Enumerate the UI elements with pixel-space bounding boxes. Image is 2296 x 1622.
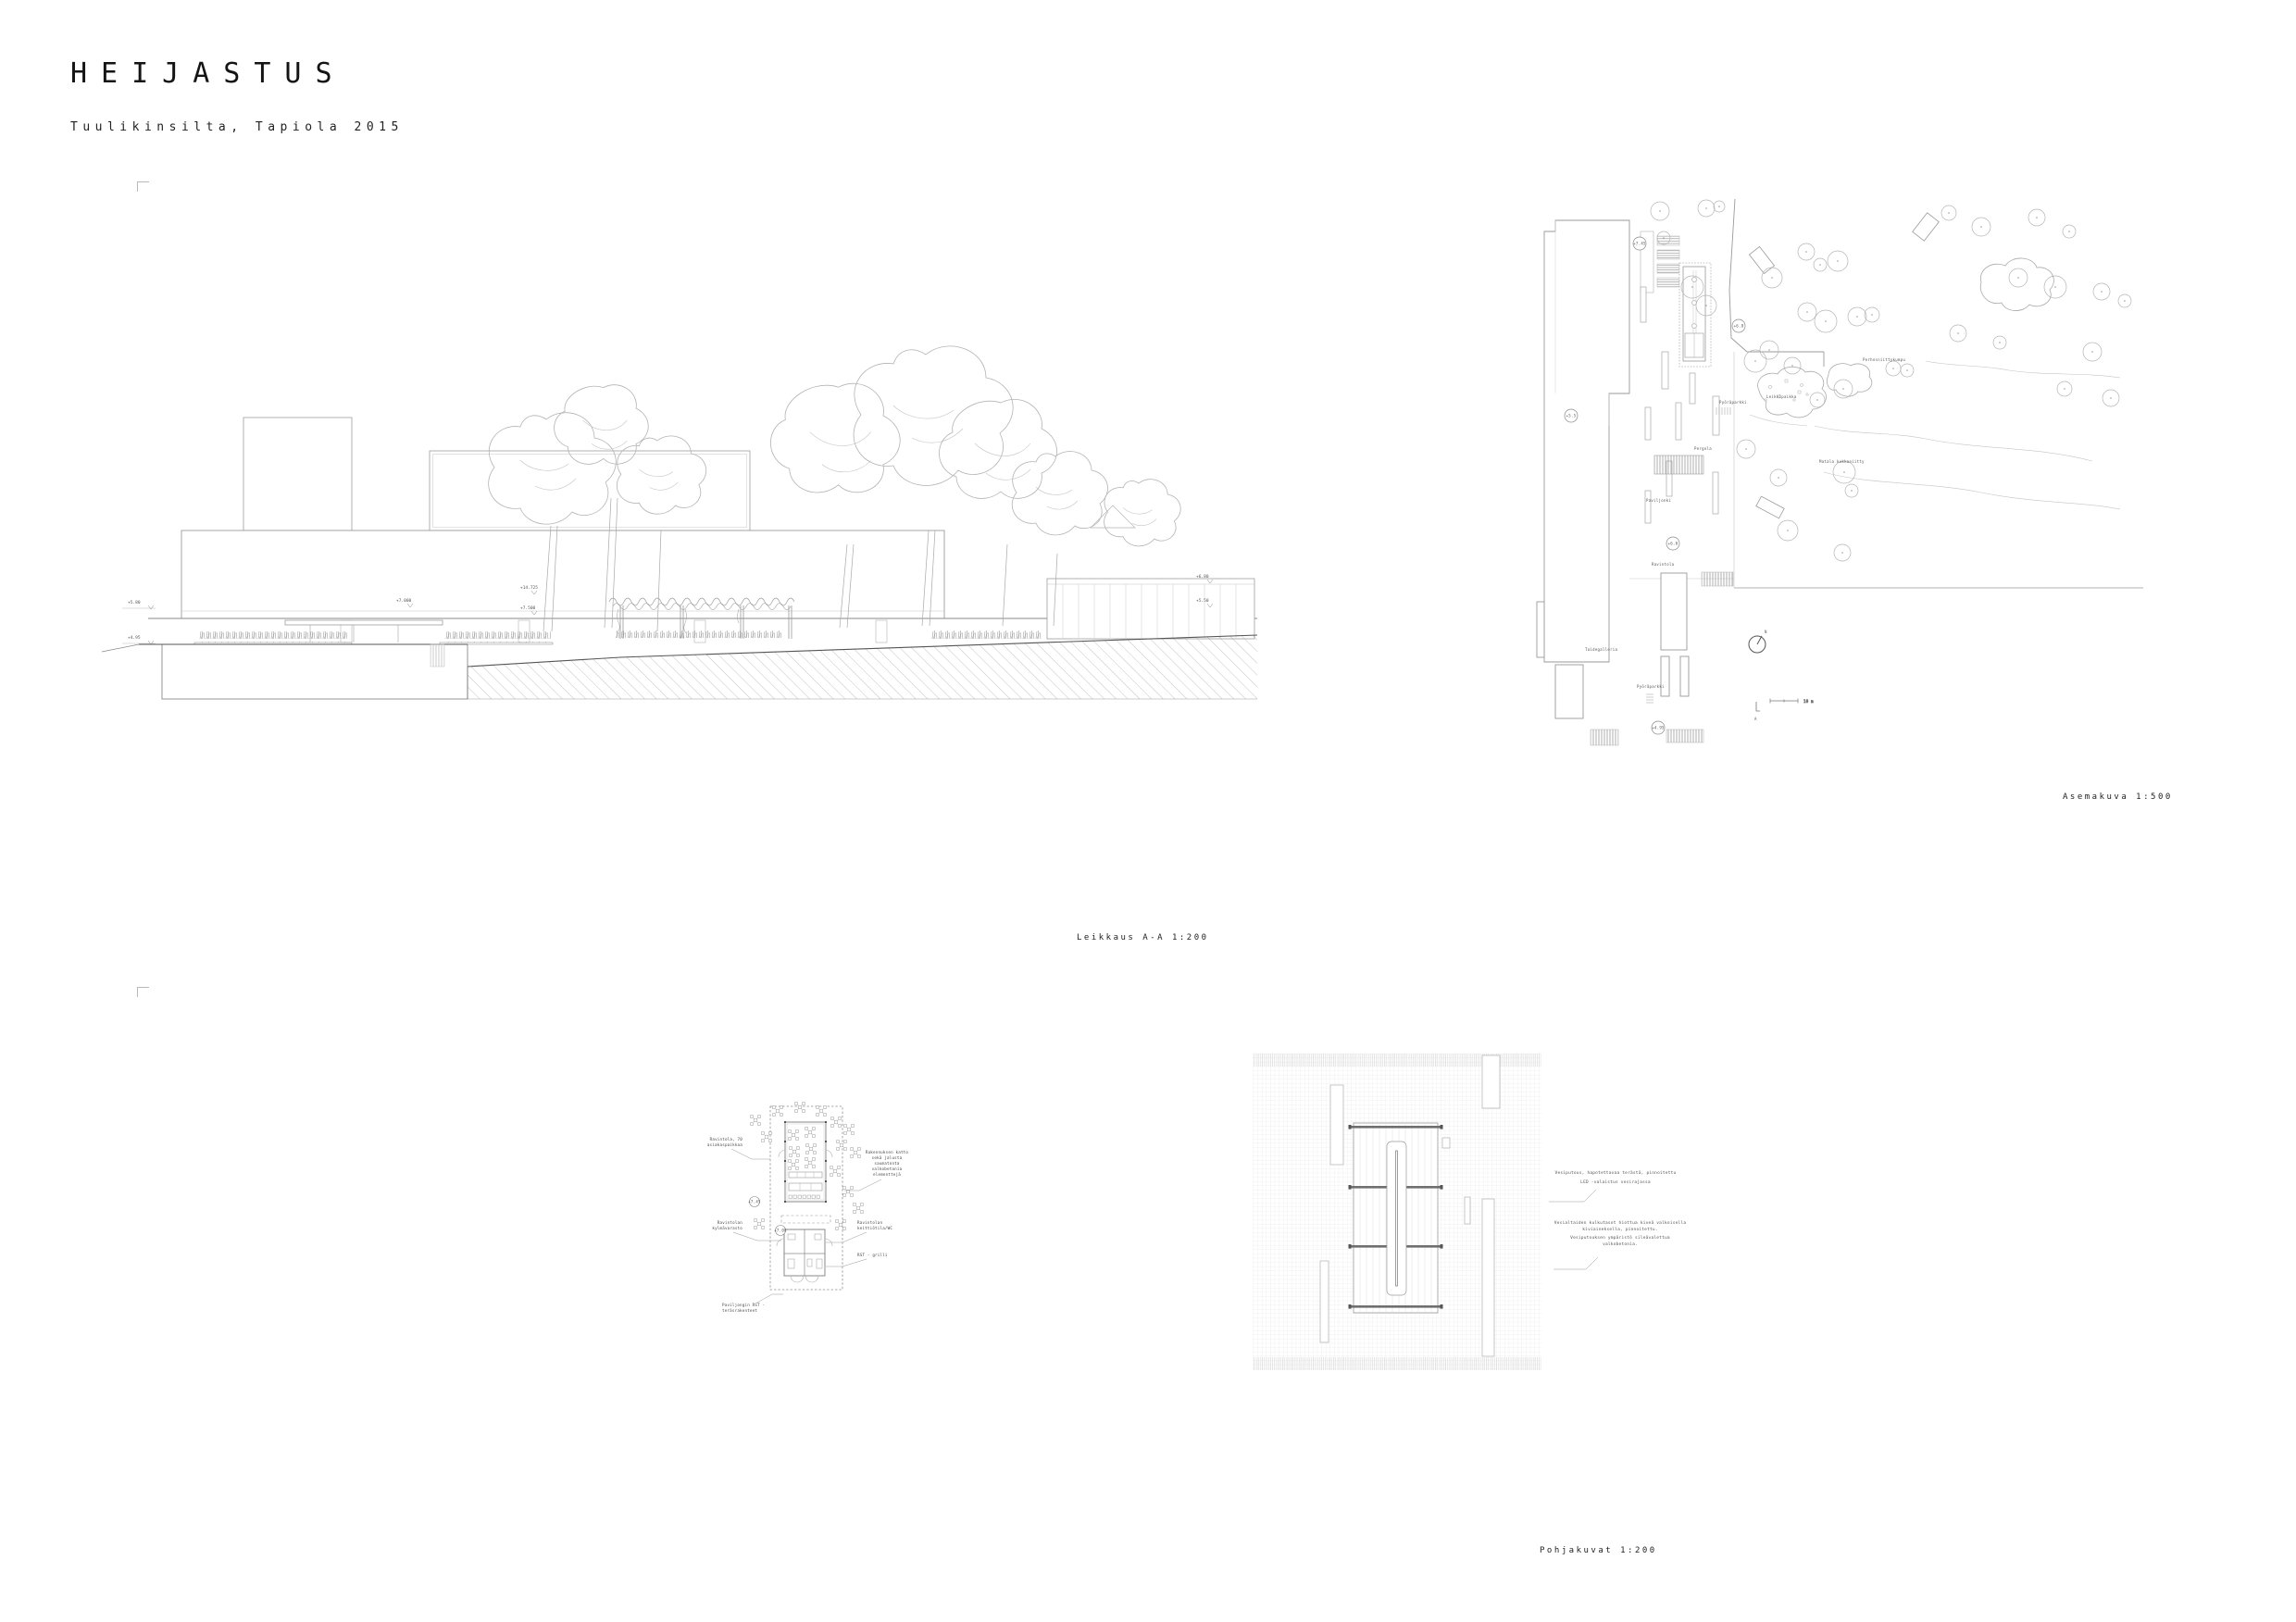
caption-floorplans: Pohjakuvat 1:200: [1540, 1546, 1657, 1555]
roof-volume-left: [243, 418, 352, 530]
callout-frame: Paviljongin RST -: [722, 1303, 765, 1307]
section-markers: A: [1754, 702, 1760, 721]
existing-building: [1537, 220, 1629, 718]
road-edges: [1629, 199, 2143, 588]
section-drawing-svg: +5.80 +4.95 +7.000 +14.725 +7.500 +6.80 …: [102, 239, 1268, 720]
restaurant-plan: [1661, 573, 1689, 696]
callout-kitchen: Ravintolan: [857, 1220, 882, 1225]
glass-pavilion: [1047, 579, 1254, 639]
level-label: +7.500: [520, 605, 536, 611]
elev-label: +6.0: [1668, 542, 1678, 546]
trellis-strip: [781, 1216, 830, 1223]
callout-roof: valkobetonia: [872, 1167, 903, 1171]
callout-roof: elementtejä: [873, 1172, 901, 1177]
pergola-plan: [1654, 455, 1703, 474]
label-bike-top: Pyöräparkki: [1719, 400, 1747, 405]
level-label: +6.80: [1196, 574, 1209, 580]
callout-walkways: valkobetonia.: [1603, 1241, 1638, 1247]
label-bike-bottom: Pyöräparkki: [1637, 684, 1665, 689]
contours: [1750, 361, 2120, 509]
callout-grill: RST - grilli: [857, 1253, 888, 1257]
callout-cold: kylmävarasto: [712, 1226, 742, 1230]
elev-label: +7.45: [748, 1200, 761, 1204]
callout-seats: asiakaspaikkaa: [707, 1142, 742, 1147]
pavilion-footprint: [1349, 1123, 1443, 1313]
site-trees: [1651, 200, 2131, 561]
label-restaurant: Ravintola: [1652, 562, 1675, 567]
callout-walkways: Vesiputouksen ympäristö sileävalettua: [1570, 1235, 1670, 1241]
floorplan-callouts: Vesiputous, hapotettavaa terästä, pinnoi…: [1549, 1170, 1686, 1269]
label-flowerfield: Matala kukkaniitty: [1819, 459, 1865, 464]
callout-waterfall: LED -valaistus vesirajassa: [1580, 1179, 1651, 1185]
detail-plan-svg: +7.45 +7.00 Ravintola, 70 asiakaspaikkaa…: [685, 1083, 963, 1333]
service-core: [777, 1229, 832, 1282]
callout-cold: Ravintolan: [717, 1220, 742, 1225]
grass-planters: [194, 628, 1042, 644]
level-label: +7.000: [396, 598, 412, 604]
floor-plan-svg: Vesiputous, hapotettavaa terästä, pinnoi…: [1245, 1037, 1708, 1389]
elev-label: +4.95: [1652, 726, 1665, 730]
north-arrow-icon: N: [1749, 630, 1767, 653]
label-pergola: Pergola: [1694, 446, 1712, 451]
playground-blob: [1758, 258, 2054, 418]
caption-siteplan: Asemakuva 1:500: [2063, 792, 2173, 802]
restaurant-hall: [779, 1121, 832, 1203]
page-title: HEIJASTUS: [70, 57, 346, 90]
callout-walkways: kiviaineksella, pinnoitettu.: [1582, 1227, 1657, 1232]
north-label: N: [1765, 630, 1767, 634]
callout-walkways: Vesialtaiden kulkutasot hiottua kiveä va…: [1554, 1220, 1687, 1226]
siteplan-svg: +7.45 +6.8 +5.5 +6.0 +4.95 Pyöräparkki P…: [1537, 194, 2148, 768]
level-label: +5.80: [128, 600, 141, 605]
corner-mark: [137, 987, 149, 997]
stair-hatches: [1641, 231, 1679, 293]
site-labels: Pyöräparkki Pergola Paviljonki Ravintola…: [1585, 357, 1905, 689]
callout-roof: saumatonta: [874, 1161, 899, 1166]
elev-label: +5.5: [1566, 414, 1577, 418]
elev-label: +7.00: [774, 1229, 787, 1233]
label-playground: Leikkipaikka: [1766, 394, 1797, 399]
callout-seats: Ravintola, 70: [710, 1137, 743, 1142]
callout-waterfall: Vesiputous, hapotettavaa terästä, pinnoi…: [1555, 1170, 1677, 1176]
label-pavilion: Paviljonki: [1646, 498, 1671, 503]
callout-roof: sekä jalusta: [872, 1155, 903, 1160]
level-label: +4.95: [128, 635, 141, 641]
caption-section: Leikkaus A-A 1:200: [1077, 933, 1209, 942]
scale-bar: 10 m: [1770, 699, 1814, 705]
elev-label: +7.45: [1633, 242, 1646, 246]
pavilion-plan: [1679, 263, 1711, 367]
presentation-sheet: HEIJASTUS Tuulikinsilta, Tapiola 2015: [0, 0, 2296, 1622]
roof-volume-right: [430, 451, 750, 530]
callout-roof: Rakennuksen katto: [866, 1150, 909, 1154]
corner-mark: [137, 181, 149, 192]
section-marker-a: A: [1754, 717, 1757, 721]
pine-tree-icon: [1091, 505, 1135, 528]
level-label: +14.725: [520, 585, 538, 591]
ground: [102, 635, 1257, 699]
label-meadow: Perhosniittykumpu: [1863, 357, 1905, 362]
page-subtitle: Tuulikinsilta, Tapiola 2015: [70, 120, 404, 134]
elev-label: +6.8: [1734, 324, 1744, 329]
callout-kitchen: keittiötila/WC: [857, 1226, 892, 1230]
label-gallery: Taidegalleria: [1585, 647, 1617, 652]
scale-label: 10 m: [1803, 699, 1814, 704]
callout-frame: teräsrakenteet: [722, 1308, 757, 1313]
level-label: +5.50: [1196, 598, 1209, 604]
